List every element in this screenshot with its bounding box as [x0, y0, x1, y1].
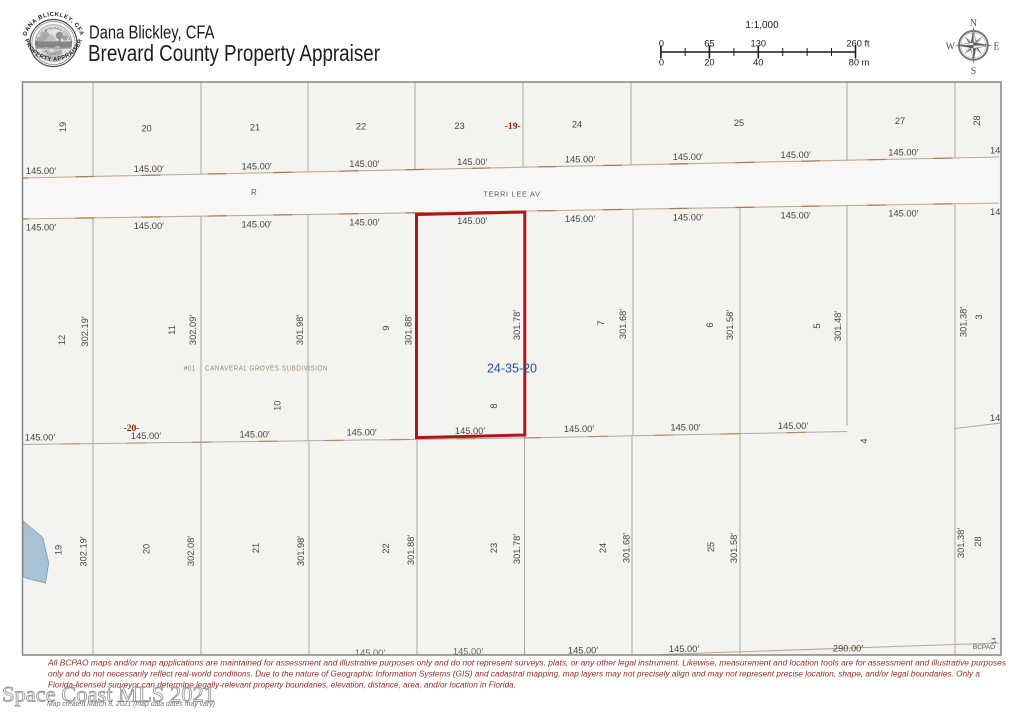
svg-text:145.00′: 145.00′	[242, 219, 272, 229]
svg-text:301.98′: 301.98′	[296, 536, 306, 566]
svg-text:24-35-20: 24-35-20	[487, 362, 537, 376]
svg-text:302.19′: 302.19′	[80, 316, 90, 346]
svg-text:20: 20	[142, 544, 152, 554]
svg-text:20: 20	[141, 123, 151, 133]
svg-text:145.00′: 145.00′	[778, 421, 808, 431]
svg-text:145.00′: 145.00′	[565, 155, 595, 165]
svg-text:145.00′: 145.00′	[134, 164, 164, 174]
svg-text:145.00′: 145.00′	[349, 159, 379, 169]
svg-text:E: E	[994, 42, 1000, 53]
svg-text:302.08′: 302.08′	[186, 536, 196, 566]
svg-text:3: 3	[974, 314, 984, 319]
svg-text:19: 19	[58, 122, 68, 132]
svg-text:145.00′: 145.00′	[670, 423, 700, 433]
svg-text:7: 7	[596, 320, 606, 325]
svg-text:22: 22	[356, 121, 366, 131]
svg-text:145.00′: 145.00′	[134, 221, 164, 231]
svg-text:BCPAO: BCPAO	[973, 644, 995, 651]
svg-text:25: 25	[706, 542, 716, 552]
svg-text:145.00′: 145.00′	[240, 429, 270, 439]
svg-text:301.88′: 301.88′	[404, 315, 414, 345]
svg-text:Map created March 8, 2021 (map: Map created March 8, 2021 (map data date…	[47, 699, 215, 708]
svg-text:23: 23	[454, 121, 464, 131]
svg-text:14: 14	[992, 637, 998, 644]
svg-text:145.00′: 145.00′	[564, 424, 594, 434]
svg-text:145.00′: 145.00′	[673, 152, 703, 162]
svg-text:-19-: -19-	[505, 121, 521, 132]
svg-text:301.38′: 301.38′	[956, 528, 966, 558]
svg-text:-20-: -20-	[124, 423, 140, 434]
svg-text:145.00′: 145.00′	[25, 433, 55, 443]
svg-text:301.68′: 301.68′	[618, 309, 628, 339]
svg-text:27: 27	[895, 116, 905, 126]
svg-text:S: S	[971, 66, 977, 77]
svg-text:145.00′: 145.00′	[455, 426, 485, 436]
svg-text:40: 40	[753, 58, 763, 68]
svg-text:301.58′: 301.58′	[725, 310, 735, 340]
svg-text:302.09′: 302.09′	[188, 315, 198, 345]
svg-text:145.00′: 145.00′	[26, 166, 56, 176]
svg-text:1:1,000: 1:1,000	[745, 20, 779, 31]
svg-text:145.00′: 145.00′	[349, 218, 379, 228]
svg-text:145.00′: 145.00′	[457, 216, 487, 226]
svg-text:301.98′: 301.98′	[295, 315, 305, 345]
svg-text:28: 28	[972, 115, 982, 125]
svg-text:5: 5	[812, 323, 822, 328]
svg-text:302.19′: 302.19′	[79, 536, 89, 566]
svg-text:145.00′: 145.00′	[568, 646, 598, 656]
svg-text:145.00′: 145.00′	[242, 162, 272, 172]
svg-text:145.00′: 145.00′	[565, 214, 595, 224]
svg-text:301.78′: 301.78′	[512, 534, 522, 564]
svg-text:14: 14	[990, 207, 1000, 217]
svg-text:24: 24	[598, 543, 608, 553]
svg-text:145.00′: 145.00′	[669, 644, 699, 654]
svg-text:145.00′: 145.00′	[347, 428, 377, 438]
svg-text:21: 21	[250, 122, 260, 132]
svg-text:260 ft: 260 ft	[846, 39, 870, 49]
svg-text:All BCPAO maps and/or map appl: All BCPAO maps and/or map applications a…	[47, 659, 1006, 668]
svg-text:301.68′: 301.68′	[622, 533, 632, 563]
svg-text:145.00′: 145.00′	[781, 150, 811, 160]
svg-text:145.00′: 145.00′	[26, 223, 56, 233]
svg-text:301.48′: 301.48′	[833, 311, 843, 341]
svg-text:145.00′: 145.00′	[781, 211, 811, 221]
svg-text:#01: #01	[184, 366, 196, 373]
svg-text:24: 24	[572, 119, 582, 129]
svg-text:145.00′: 145.00′	[673, 212, 703, 222]
svg-text:N: N	[970, 18, 977, 29]
svg-text:80 m: 80 m	[849, 58, 870, 68]
svg-text:8: 8	[489, 403, 499, 408]
svg-text:R: R	[251, 188, 257, 197]
svg-text:11: 11	[167, 325, 177, 335]
svg-text:19: 19	[54, 545, 64, 555]
svg-text:Brevard County Property Apprai: Brevard County Property Appraiser	[88, 40, 380, 66]
svg-text:0: 0	[659, 58, 664, 68]
svg-text:W: W	[946, 42, 956, 53]
svg-text:301.88′: 301.88′	[406, 535, 416, 565]
svg-text:10: 10	[273, 401, 283, 411]
svg-text:28: 28	[973, 536, 983, 546]
svg-text:12: 12	[57, 335, 67, 345]
svg-text:TERRI LEE AV: TERRI LEE AV	[483, 190, 540, 199]
svg-text:145.00′: 145.00′	[888, 148, 918, 158]
svg-text:301.38′: 301.38′	[959, 307, 969, 337]
svg-text:145.00′: 145.00′	[457, 157, 487, 167]
svg-text:14: 14	[990, 146, 1000, 156]
svg-text:21: 21	[251, 543, 261, 553]
svg-text:9: 9	[381, 325, 391, 330]
svg-text:23: 23	[489, 543, 499, 553]
svg-text:4: 4	[859, 438, 869, 443]
svg-text:145.00′: 145.00′	[355, 648, 385, 658]
svg-text:6: 6	[705, 322, 715, 327]
svg-text:25: 25	[734, 118, 744, 128]
svg-text:CANAVERAL GROVES SUBDIVISION: CANAVERAL GROVES SUBDIVISION	[205, 366, 328, 373]
svg-text:301.78′: 301.78′	[512, 310, 522, 340]
svg-text:290.00′: 290.00′	[833, 644, 863, 654]
svg-text:145.00′: 145.00′	[888, 209, 918, 219]
svg-text:301.58′: 301.58′	[729, 533, 739, 563]
svg-text:22: 22	[381, 543, 391, 553]
svg-text:20: 20	[704, 58, 714, 68]
svg-text:only and do not necessarily re: only and do not necessarily reflect real…	[48, 670, 981, 679]
svg-text:14: 14	[990, 413, 1000, 423]
